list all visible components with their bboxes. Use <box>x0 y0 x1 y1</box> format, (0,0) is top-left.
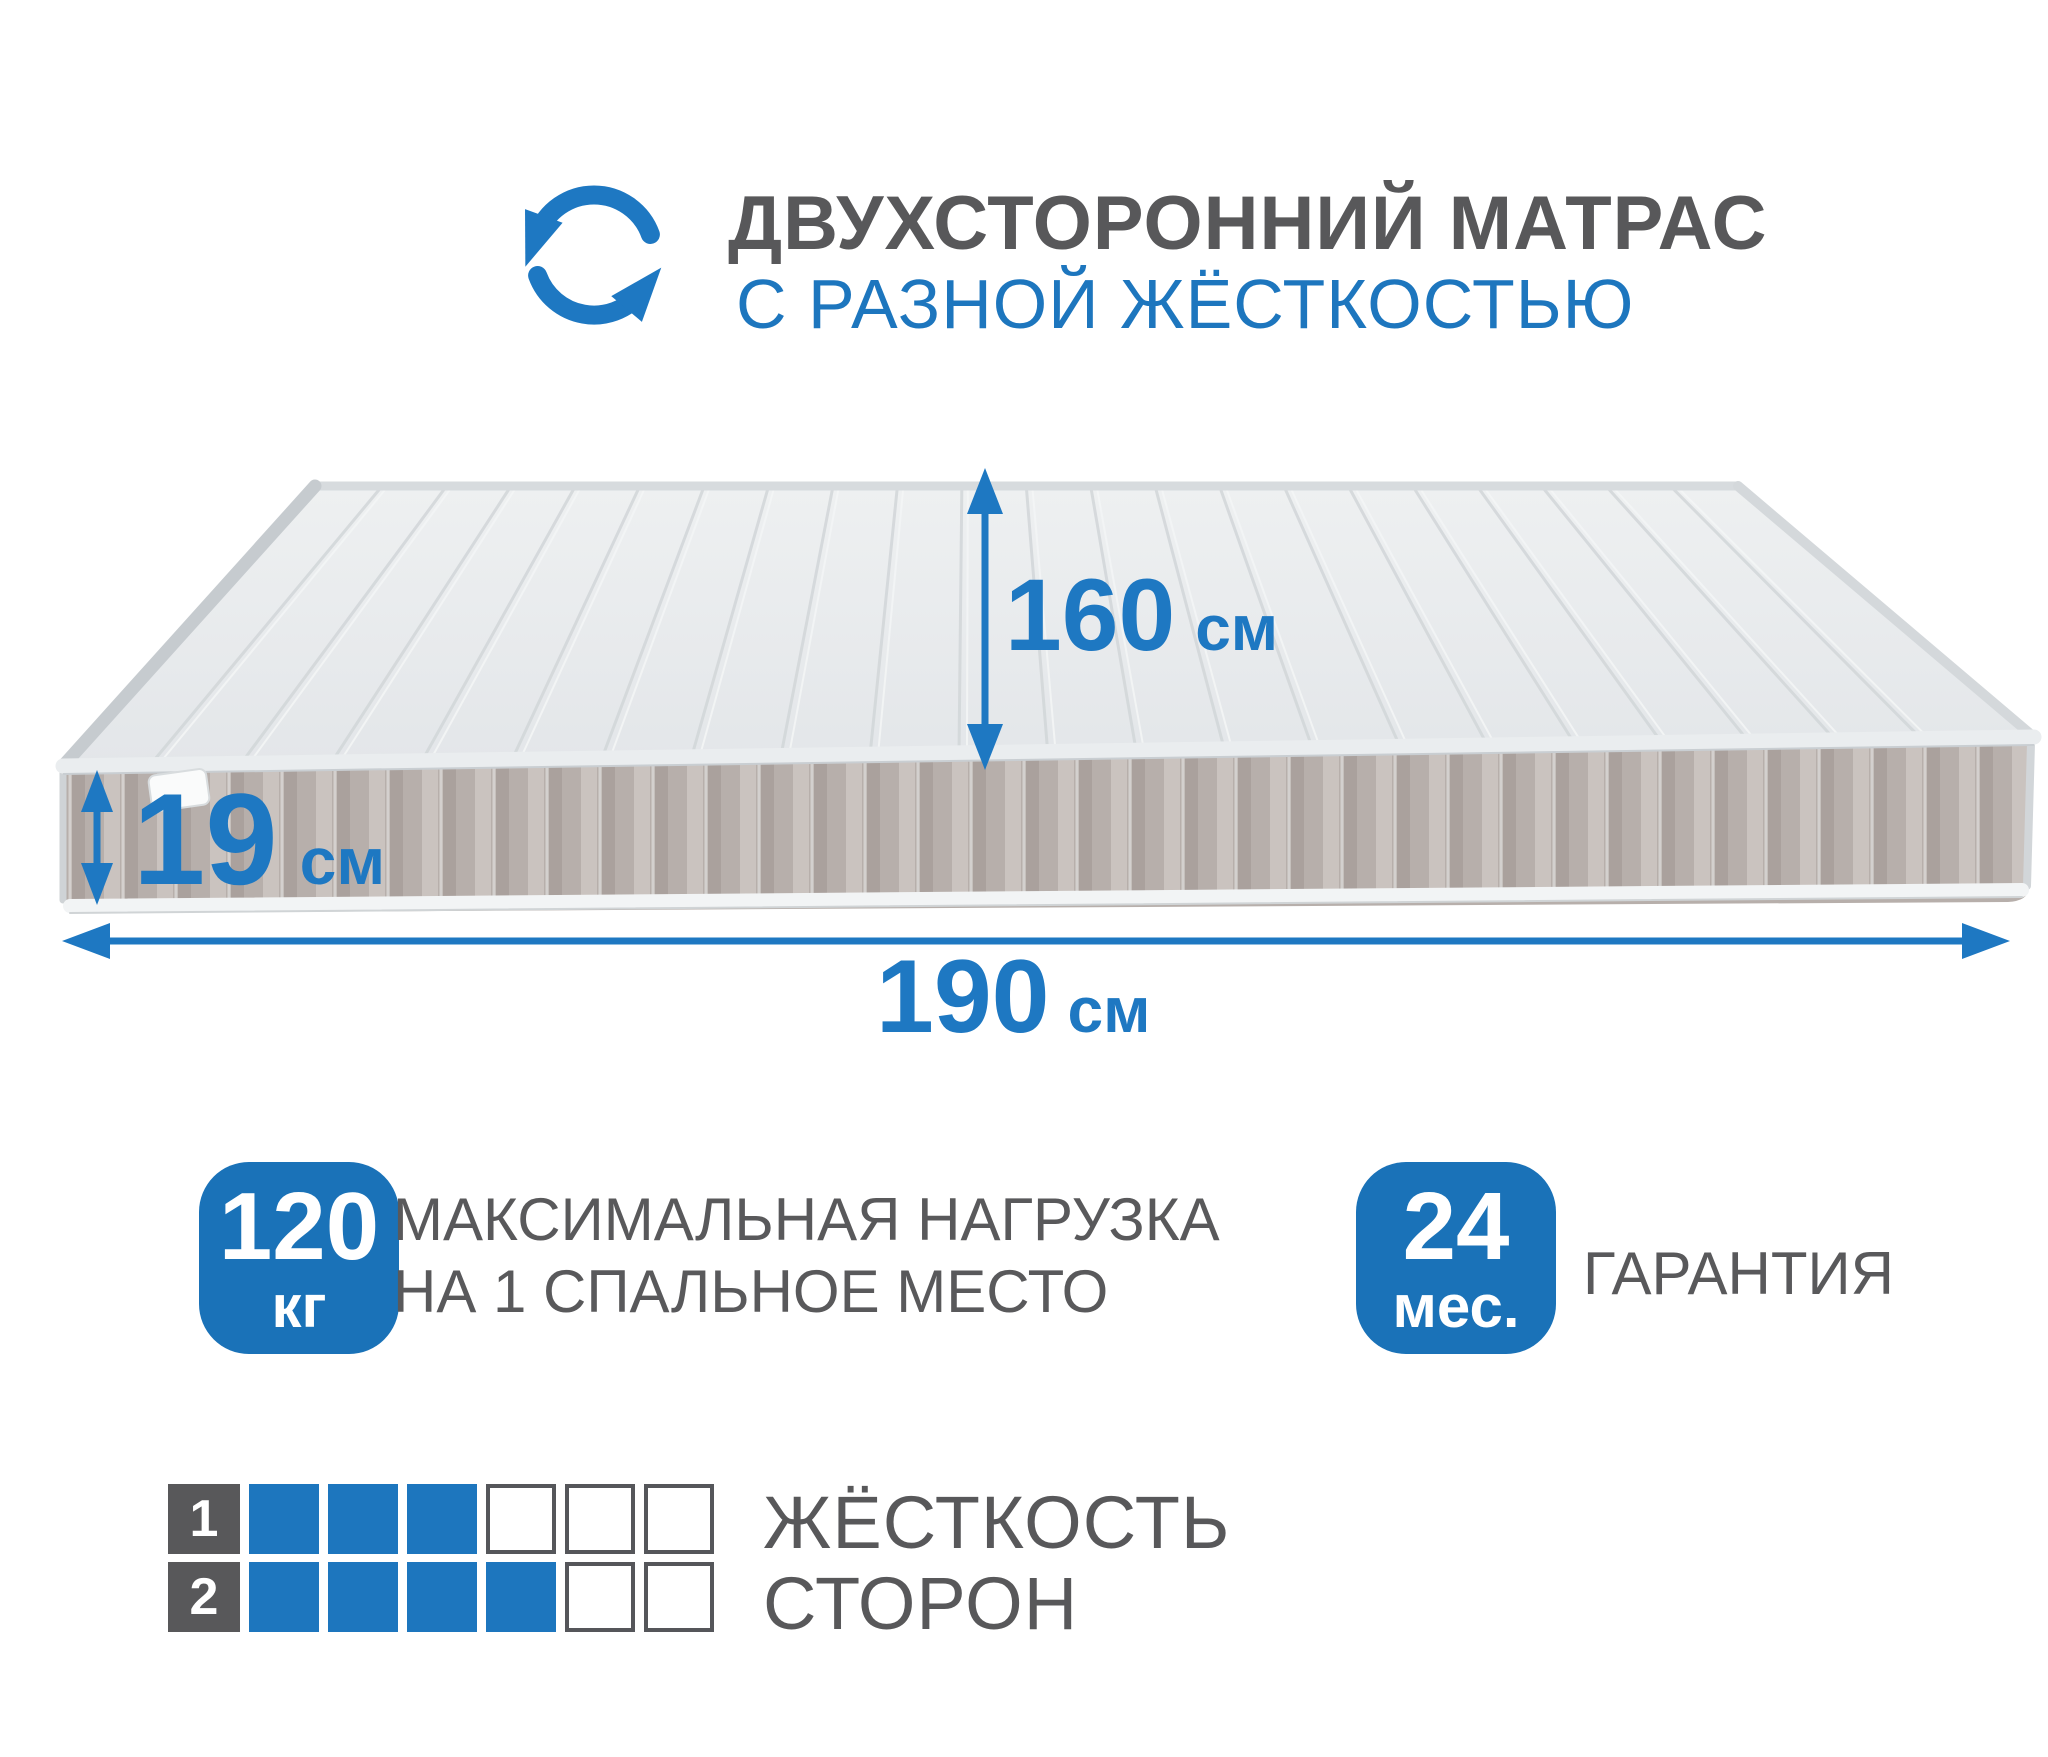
hardness-label-line2: СТОРОН <box>763 1563 1231 1644</box>
side-channel-highlight <box>1058 755 1074 898</box>
side-channel-highlight <box>104 769 120 907</box>
side-channel-shade <box>1291 752 1304 896</box>
side-channel-highlight <box>1853 743 1869 890</box>
length-label: 190см <box>876 939 1150 1055</box>
warranty-label: ГАРАНТИЯ <box>1583 1238 1894 1310</box>
hardness-side-number: 2 <box>168 1562 240 1632</box>
hardness-cell-filled <box>249 1562 319 1632</box>
side-channel-highlight <box>581 762 597 903</box>
side-channel-shade <box>1980 742 1993 890</box>
hardness-cell-filled <box>249 1484 319 1554</box>
side-channel-shade <box>761 760 774 902</box>
hardness-cell-empty <box>565 1562 635 1632</box>
hardness-label-line1: ЖЁСТКОСТЬ <box>763 1482 1231 1563</box>
side-channel-shade <box>1344 751 1357 896</box>
hardness-cell-filled <box>407 1484 477 1554</box>
side-channel-shade <box>602 762 615 903</box>
side-channel-highlight <box>1164 754 1180 898</box>
side-channel-shade <box>973 756 986 899</box>
side-channel-highlight <box>634 761 650 902</box>
hardness-cell-filled <box>407 1562 477 1632</box>
side-channel-highlight <box>687 761 703 902</box>
hardness-scale-label: ЖЁСТКОСТЬ СТОРОН <box>763 1482 1231 1644</box>
side-channel-shade <box>708 760 721 901</box>
side-channel-shade <box>1185 753 1198 897</box>
side-channel-shade <box>920 757 933 900</box>
side-channel-shade <box>1503 749 1516 894</box>
side-channel-highlight <box>1323 751 1339 896</box>
side-channel-highlight <box>846 758 862 900</box>
hardness-cell-filled <box>486 1562 556 1632</box>
side-channel-highlight <box>899 757 915 899</box>
side-channel-shade <box>72 770 85 908</box>
side-channel-shade <box>1609 747 1622 893</box>
side-channel-shade <box>1768 745 1781 892</box>
side-channel-highlight <box>1482 749 1498 894</box>
hardness-cell-filled <box>328 1484 398 1554</box>
side-channel-shade <box>549 763 562 904</box>
hardness-cell-empty <box>644 1562 714 1632</box>
hardness-row: 1 <box>168 1484 714 1554</box>
side-channel-highlight <box>1270 752 1286 896</box>
side-channel-highlight <box>1906 743 1922 891</box>
side-channel-shade <box>443 764 456 904</box>
side-channel-highlight <box>793 759 809 901</box>
side-channel-shade <box>284 767 297 906</box>
mattress-side-right-edge <box>2027 743 2031 886</box>
hardness-cell-empty <box>486 1484 556 1554</box>
side-channel-highlight <box>422 764 438 904</box>
side-channel-shade <box>1662 746 1675 892</box>
side-channel-highlight <box>1747 745 1763 892</box>
side-channel-shade <box>1397 750 1410 895</box>
hardness-cell-empty <box>644 1484 714 1554</box>
top-stripe-highlight <box>967 489 968 762</box>
side-channel-shade <box>1132 754 1145 898</box>
hardness-scale: 12 <box>168 1484 714 1640</box>
side-channel-highlight <box>1535 748 1551 894</box>
side-channel-shade <box>867 758 880 900</box>
side-channel-highlight <box>1217 753 1233 897</box>
warranty-badge: 24 мес. <box>1356 1162 1556 1354</box>
side-channel-shade <box>496 763 509 903</box>
max-load-value: 120 <box>219 1181 379 1272</box>
side-channel-highlight <box>1641 747 1657 893</box>
max-load-label: МАКСИМАЛЬНАЯ НАГРУЗКА НА 1 СПАЛЬНОЕ МЕСТ… <box>393 1184 1220 1328</box>
side-channel-highlight <box>1959 742 1975 890</box>
side-channel-shade <box>655 761 668 902</box>
hardness-row: 2 <box>168 1562 714 1632</box>
warranty-value: 24 <box>1403 1181 1510 1272</box>
side-channel-shade <box>1450 749 1463 894</box>
side-channel-shade <box>1026 756 1039 899</box>
side-channel-highlight <box>1376 750 1392 895</box>
side-channel-highlight <box>1429 750 1445 895</box>
side-channel-shade <box>1238 753 1251 897</box>
hardness-cell-filled <box>328 1562 398 1632</box>
side-channel-highlight <box>1694 746 1710 892</box>
hardness-side-number: 1 <box>168 1484 240 1554</box>
side-channel-shade <box>1927 742 1940 890</box>
side-channel-highlight <box>1005 756 1021 899</box>
side-channel-highlight <box>528 763 544 904</box>
side-channel-shade <box>1715 746 1728 893</box>
max-load-label-line1: МАКСИМАЛЬНАЯ НАГРУЗКА <box>393 1184 1220 1256</box>
side-channel-shade <box>1874 743 1887 890</box>
side-channel-highlight <box>1111 754 1127 898</box>
side-channel-highlight <box>1588 747 1604 893</box>
side-channel-shade <box>1079 755 1092 898</box>
max-load-unit: кг <box>271 1278 326 1335</box>
max-load-badge: 120 кг <box>199 1162 399 1354</box>
infographic-page: ДВУХСТОРОННИЙ МАТРАС С РАЗНОЙ ЖЁСТКОСТЬЮ <box>0 0 2048 1757</box>
side-channel-highlight <box>1800 744 1816 891</box>
side-channel-shade <box>1821 744 1834 891</box>
side-channel-shade <box>390 765 403 905</box>
side-channel-highlight <box>740 760 756 902</box>
warranty-unit: мес. <box>1392 1278 1519 1335</box>
side-channel-highlight <box>475 764 491 904</box>
side-channel-shade <box>814 759 827 901</box>
side-channel-shade <box>1556 748 1569 894</box>
side-channel-highlight <box>952 757 968 900</box>
hardness-cell-empty <box>565 1484 635 1554</box>
max-load-label-line2: НА 1 СПАЛЬНОЕ МЕСТО <box>393 1256 1220 1328</box>
